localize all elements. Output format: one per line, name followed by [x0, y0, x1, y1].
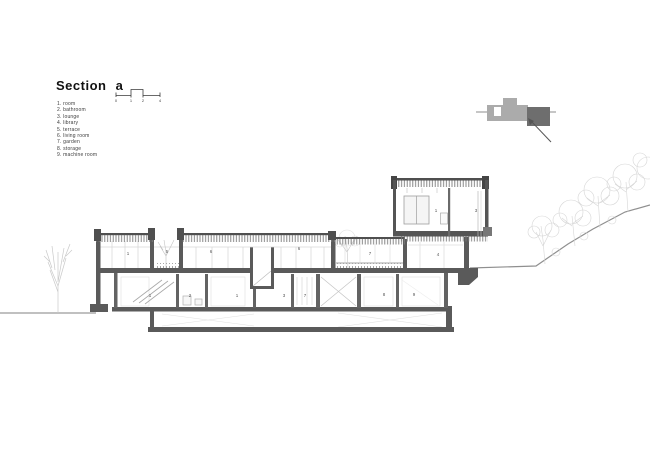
- legend-item: 9. machine room: [57, 152, 97, 158]
- room-label: 7: [369, 252, 372, 257]
- garden-planting-bed: [336, 264, 404, 269]
- roof-parapet: [148, 228, 155, 240]
- tree-left-icon: [44, 244, 72, 313]
- upper-floor: [391, 176, 492, 237]
- room-label: 7: [304, 294, 307, 299]
- scale-tick-1: 1: [130, 98, 132, 103]
- right-foundation-foot: [458, 268, 478, 285]
- scale-tick-2: 2: [142, 98, 144, 103]
- upper-door: [441, 213, 448, 224]
- main-level-glazing: [100, 241, 463, 268]
- room-label: 6: [210, 250, 213, 255]
- basement-level: [114, 272, 448, 308]
- key-plan: [476, 98, 556, 142]
- stair-shaft-wall: [271, 247, 274, 288]
- hillside-ground-line: [470, 205, 650, 268]
- roof-parapet: [94, 229, 101, 241]
- tree-garden-icon: [335, 230, 360, 268]
- room-label: 1: [149, 294, 152, 299]
- scale-tick-4: 4: [159, 98, 161, 103]
- courtyard-planting: [156, 263, 182, 268]
- room-label: 6: [298, 247, 301, 252]
- section-drawing: [0, 0, 650, 459]
- room-label: 8: [383, 293, 386, 298]
- bathroom-fixture: [195, 299, 202, 305]
- hillside-trees-icon: [528, 153, 650, 264]
- room-label: 3: [475, 209, 478, 214]
- main-floor-slab: [96, 268, 470, 273]
- room-label: 4: [437, 253, 440, 258]
- basement-stairs: [133, 280, 174, 304]
- architectural-section-sheet: Section a 0 1 2 4 1. room 2. bathroom 3.…: [0, 0, 650, 459]
- void-cross: [321, 277, 356, 306]
- key-plan-notch: [494, 107, 501, 116]
- room-label: 1: [435, 209, 438, 214]
- upper-floor-slab: [393, 231, 488, 237]
- room-label: 3: [283, 294, 286, 299]
- key-plan-footprint: [487, 98, 528, 121]
- room-label: 5: [166, 250, 169, 255]
- roof-parapet: [328, 231, 336, 240]
- room-label: 2: [189, 294, 192, 299]
- room-label: 1: [236, 294, 239, 299]
- room-legend: 1. room 2. bathroom 3. lounge 4. library…: [57, 101, 97, 159]
- foundation: [90, 304, 454, 332]
- scale-tick-0: 0: [115, 98, 117, 103]
- sheet-title: Section a: [56, 78, 123, 93]
- room-label: 9: [413, 293, 416, 298]
- building-section: [90, 176, 492, 332]
- lightwell-grating: [297, 277, 312, 305]
- roof-parapet: [177, 228, 184, 240]
- stair-shaft-wall: [250, 247, 253, 288]
- room-label: 1: [127, 252, 130, 257]
- stair-shaft-opening: [253, 266, 271, 286]
